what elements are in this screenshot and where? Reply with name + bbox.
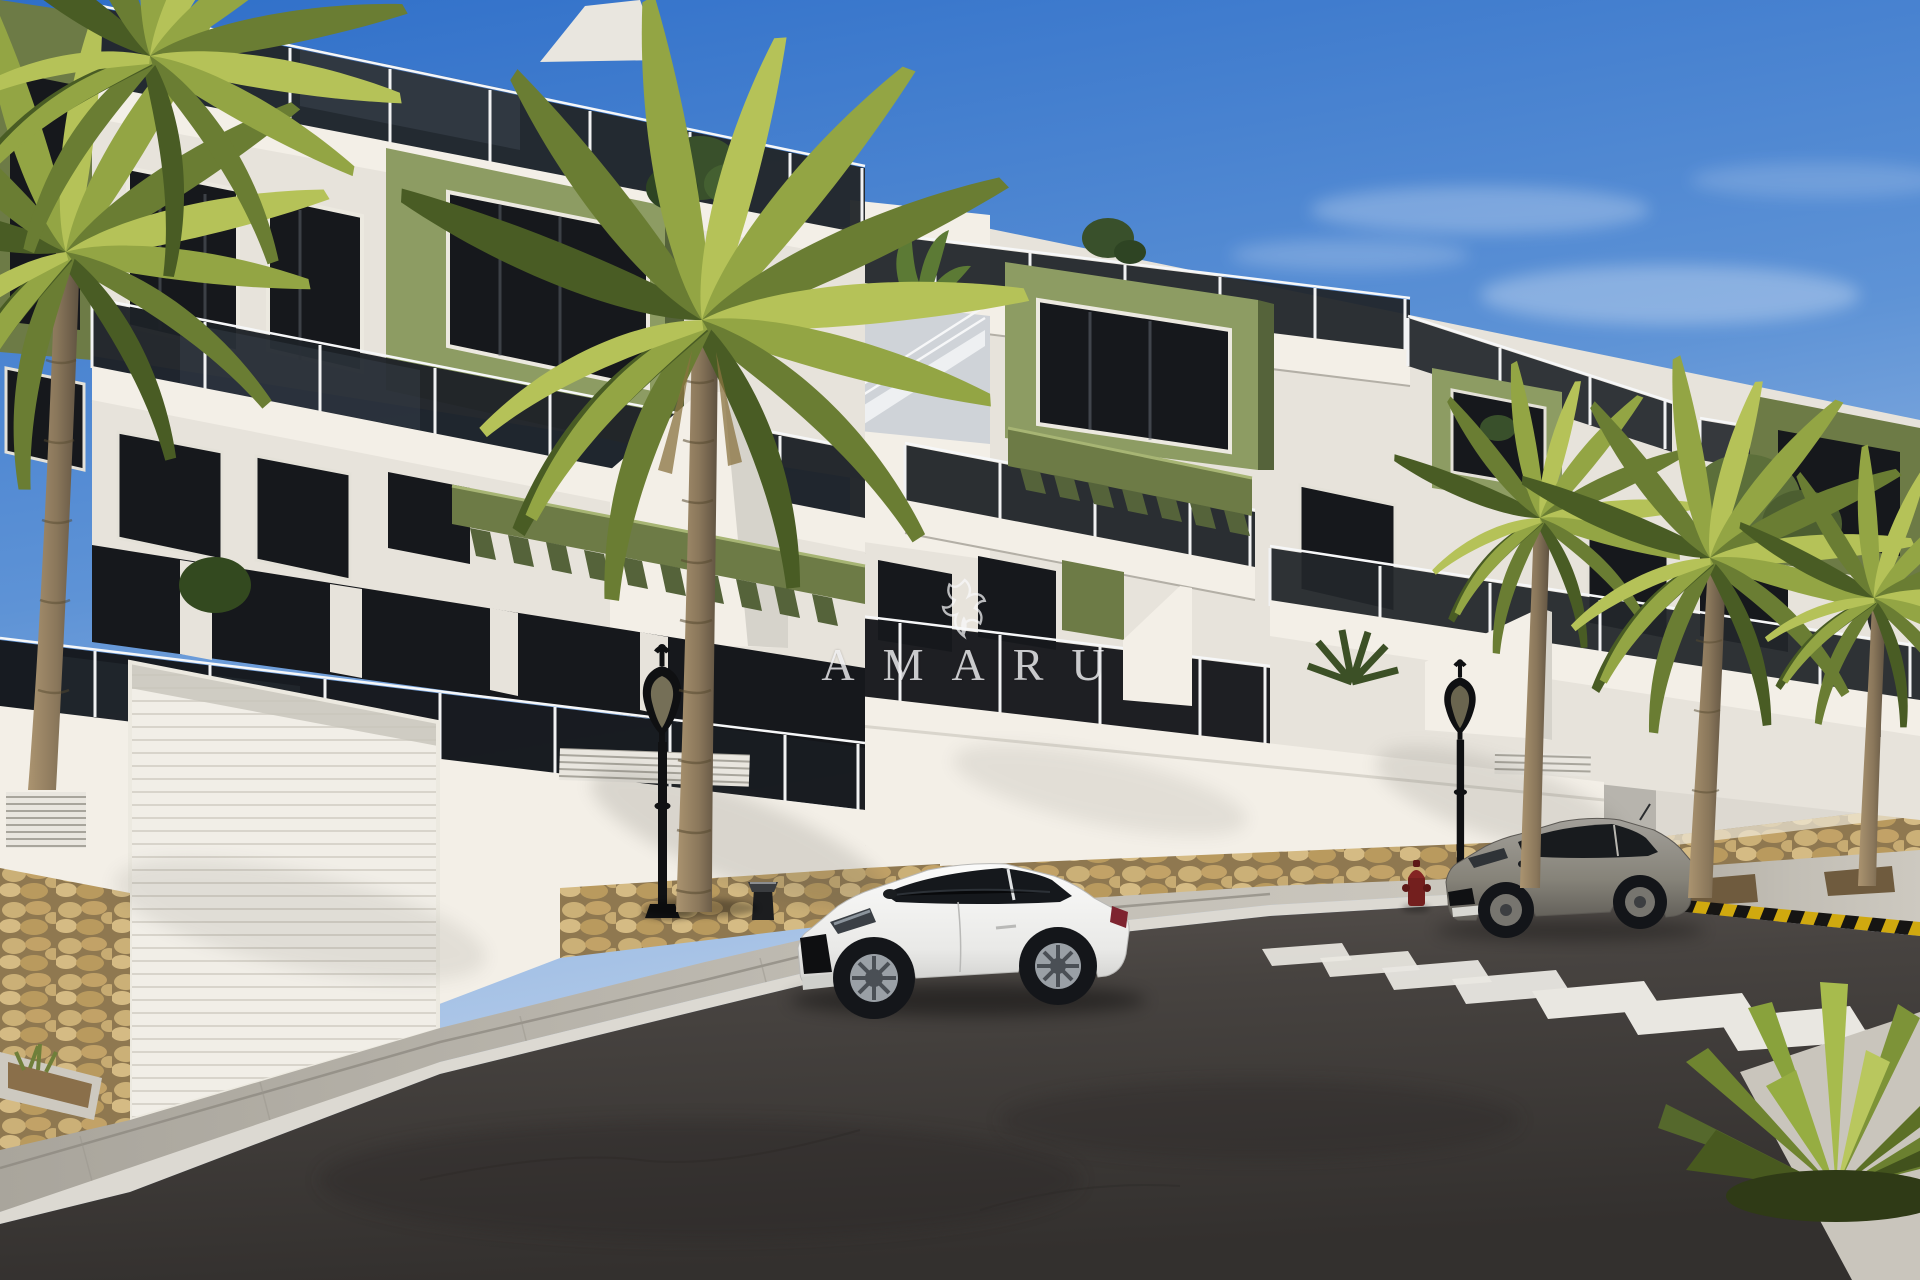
render-viewport: AMARU — [0, 0, 1920, 1280]
street-render — [0, 0, 1920, 1280]
wheel — [833, 937, 915, 1019]
vent-grille — [6, 792, 86, 848]
wheel — [1019, 927, 1097, 1005]
